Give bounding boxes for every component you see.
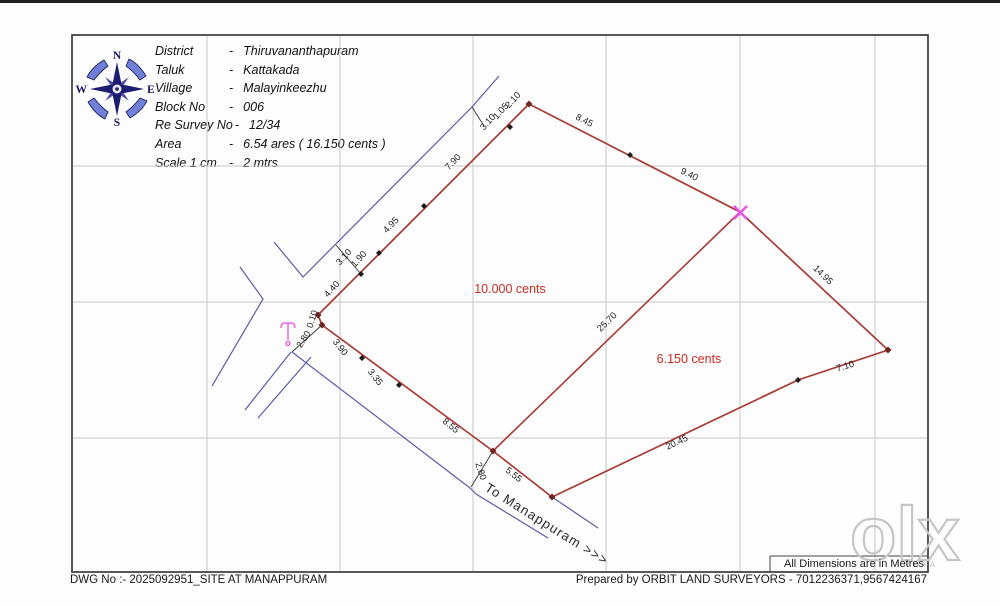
survey-map: olx INDIA (0, 0, 1000, 606)
dim-label: 20.45 (664, 433, 689, 452)
electric-pole-icon (281, 323, 295, 346)
dim-label: 2.80 (294, 329, 312, 350)
compass-south-label: S (114, 117, 120, 129)
dim-label: 5.55 (504, 465, 524, 484)
dim-label: 2.10 (503, 90, 523, 110)
compass-north-label: N (113, 50, 122, 62)
dim-label: 7.90 (443, 152, 463, 172)
compass-banner (126, 59, 146, 80)
plot-divider-line (493, 212, 740, 451)
road-edges (212, 76, 598, 538)
dim-label: 4.95 (381, 215, 401, 235)
survey-points (358, 124, 801, 388)
dimension-labels: 3.10 1.05 2.10 8.45 9.40 14.95 7.10 20.4… (294, 90, 855, 484)
survey-drawing-sheet: District-Thiruvananthapuram Taluk-Kattak… (0, 0, 1000, 606)
compass-east-label: E (147, 84, 155, 96)
compass-hub-dot (115, 87, 119, 91)
dim-label: 7.10 (835, 359, 855, 374)
dim-label: 0.10 (305, 309, 320, 329)
dim-label: 8.45 (574, 112, 595, 129)
dim-label: 25.70 (595, 310, 619, 333)
dim-label: 1.90 (349, 249, 369, 269)
dim-label: 3.90 (331, 337, 350, 357)
dim-label: 8.55 (441, 416, 461, 435)
dim-label: 9.40 (679, 166, 700, 183)
dim-label: 2.80 (473, 461, 488, 481)
road-edge-southwest-outer (245, 352, 291, 410)
area-label-6-cents: 6.150 cents (657, 352, 722, 366)
road-edge-west (212, 267, 263, 386)
corner-points (315, 101, 892, 501)
dim-label: 14.95 (811, 263, 835, 286)
dim-label: 4.40 (322, 279, 342, 299)
magenta-markers (281, 206, 747, 346)
prepared-by: Prepared by ORBIT LAND SURVEYORS - 70122… (576, 574, 927, 586)
dimension-ticks (292, 107, 493, 487)
dwg-number: DWG No :- 2025092951_SITE AT MANAPPURAM (70, 574, 327, 586)
compass-banner (87, 60, 108, 80)
compass-banner (126, 98, 147, 118)
pole-base (286, 342, 290, 346)
dimensions-note: All Dimensions are in Metres (784, 558, 924, 570)
area-label-10-cents: 10.000 cents (474, 282, 546, 296)
survey-dot (795, 377, 801, 383)
compass-rose: N E S W (76, 50, 156, 129)
road-edge-southwest-inner (258, 357, 311, 418)
road-edge-manappuram (292, 352, 548, 538)
compass-banner (88, 98, 108, 119)
compass-west-label: W (76, 84, 88, 96)
